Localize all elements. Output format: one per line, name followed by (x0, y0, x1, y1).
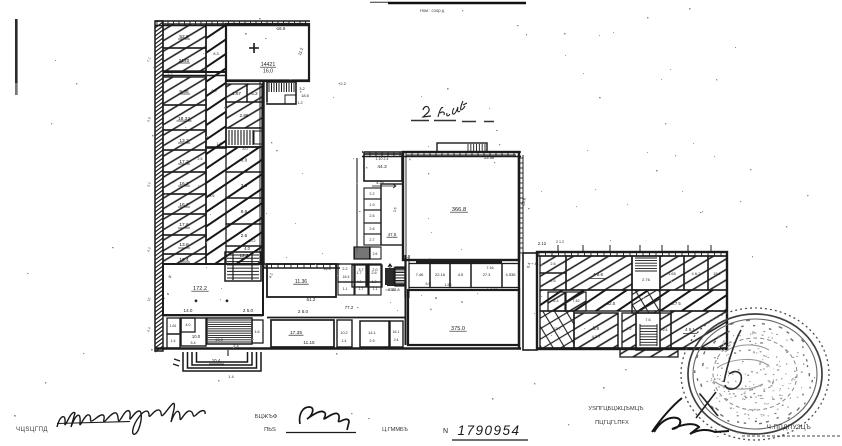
svg-text:1.4: 1.4 (342, 339, 347, 343)
svg-text:4.0: 4.0 (244, 246, 250, 251)
svg-text:32.5: 32.5 (607, 301, 616, 306)
svg-text:£ 73.8: £ 73.8 (388, 287, 400, 292)
svg-text:6.4: 6.4 (553, 299, 558, 303)
svg-text:13.0: 13.0 (215, 337, 224, 342)
svg-text:2.6: 2.6 (373, 252, 378, 256)
svg-text:◆: ◆ (194, 298, 198, 303)
svg-text:16.4: 16.4 (343, 275, 350, 279)
svg-text:1.2: 1.2 (372, 280, 377, 284)
svg-text:ЧЦSЦГПД: ЧЦSЦГПД (16, 427, 48, 433)
svg-text:4.6: 4.6 (255, 330, 260, 334)
svg-text:8.0: 8.0 (241, 158, 248, 163)
svg-text:7.6: 7.6 (645, 318, 650, 322)
svg-text:ˈ: ˈ (645, 240, 646, 244)
svg-text:s: s (461, 300, 463, 304)
svg-text:77.2: 77.2 (345, 305, 354, 310)
svg-text:2.6: 2.6 (550, 279, 555, 283)
svg-text:10.4: 10.4 (212, 358, 221, 363)
svg-text:1.56: 1.56 (445, 283, 452, 287)
svg-text:13.7: 13.7 (553, 326, 562, 331)
svg-text:14.1: 14.1 (368, 330, 377, 335)
svg-text:4.2: 4.2 (357, 280, 362, 284)
svg-text:2.6: 2.6 (369, 227, 374, 231)
svg-text:1790954: 1790954 (457, 423, 520, 438)
svg-text:2.6: 2.6 (550, 262, 555, 266)
svg-text:2.4: 2.4 (394, 338, 399, 342)
svg-text:37.2: 37.2 (642, 296, 650, 301)
svg-text:5.2: 5.2 (251, 91, 258, 96)
svg-text:5.8: 5.8 (593, 326, 599, 331)
svg-text:4 6.6: 4 6.6 (593, 272, 604, 277)
svg-text:◆: ◆ (225, 298, 229, 303)
svg-text:16,0: 16,0 (263, 69, 273, 75)
svg-text:Ч.ППДПУЗЦЪ: Ч.ППДПУЗЦЪ (767, 424, 811, 431)
svg-text:1.61: 1.61 (170, 324, 177, 328)
svg-text:7.42: 7.42 (572, 299, 579, 303)
svg-text:16.6: 16.6 (277, 26, 286, 31)
svg-text:2.76: 2.76 (642, 277, 651, 282)
svg-text:N: N (169, 274, 172, 279)
svg-text:1.9: 1.9 (369, 203, 374, 207)
svg-text:1.7: 1.7 (356, 271, 361, 275)
svg-text:2.2: 2.2 (369, 192, 374, 196)
svg-text:2 5.0: 2 5.0 (243, 308, 254, 313)
svg-text:1.2: 1.2 (297, 101, 302, 105)
svg-text:1.65: 1.65 (668, 271, 677, 276)
svg-text:1 4: 1 4 (228, 374, 234, 379)
svg-text:13.8: 13.8 (179, 242, 189, 248)
svg-text:+: + (409, 157, 412, 162)
svg-text:44.3: 44.3 (377, 164, 387, 170)
svg-text:7.2: 7.2 (626, 327, 631, 331)
svg-text:+: + (430, 307, 433, 312)
svg-text:5.2: 5.2 (168, 73, 173, 77)
svg-text:+ 4 -: + 4 - (531, 262, 539, 266)
svg-text:4.536: 4.536 (505, 272, 516, 277)
svg-text:2.7: 2.7 (369, 238, 374, 242)
svg-text:1.1: 1.1 (343, 287, 348, 291)
svg-text:3.6: 3.6 (393, 207, 398, 213)
svg-text:3.4: 3.4 (190, 341, 195, 345)
svg-text:3.2: 3.2 (299, 86, 305, 91)
svg-text:1.4: 1.4 (171, 339, 176, 343)
svg-text:3.6: 3.6 (241, 183, 248, 188)
svg-text:7.46: 7.46 (416, 272, 425, 277)
svg-text:4.5: 4.5 (458, 272, 464, 277)
svg-text:61.2: 61.2 (307, 297, 316, 302)
svg-text:УSПГЦБЦЖЦЪМЦЪ: УSПГЦБЦЖЦЪМЦЪ (588, 406, 644, 412)
svg-text:s: s (167, 291, 169, 296)
svg-text:10.2: 10.2 (340, 331, 347, 335)
svg-text:2 5.0: 2 5.0 (298, 309, 309, 314)
svg-text:a: a (435, 296, 437, 300)
svg-text:Ц.ГММБЪ: Ц.ГММБЪ (382, 427, 408, 433)
svg-text:+2.2: +2.2 (338, 81, 347, 86)
svg-text:17.6: 17.6 (179, 222, 189, 228)
svg-text:4 6.1: 4 6.1 (685, 327, 695, 332)
svg-text:2 1 2: 2 1 2 (556, 240, 564, 244)
svg-text:47.5: 47.5 (388, 232, 397, 237)
svg-text:22.16: 22.16 (435, 272, 446, 277)
svg-text:ПЬS: ПЬS (264, 427, 276, 433)
svg-text:5.6: 5.6 (426, 282, 431, 286)
svg-text:2.6: 2.6 (198, 157, 203, 161)
svg-text:14.0: 14.0 (184, 308, 193, 313)
svg-text:2.86: 2.86 (240, 113, 249, 118)
svg-text:2.6: 2.6 (663, 328, 668, 332)
svg-text:1.67: 1.67 (232, 91, 241, 96)
svg-text:4.0: 4.0 (186, 323, 191, 327)
svg-text:27.3: 27.3 (483, 272, 492, 277)
svg-text:5.7 5: 5.7 5 (671, 301, 681, 306)
svg-text:7.16: 7.16 (486, 266, 493, 270)
svg-text:N: N (443, 428, 448, 435)
svg-text:16.1: 16.1 (393, 330, 400, 334)
svg-text:2.6: 2.6 (369, 214, 374, 218)
svg-text:2.12: 2.12 (538, 241, 547, 246)
svg-text:2.6: 2.6 (241, 233, 248, 238)
svg-text:18.5: 18.5 (301, 93, 310, 98)
svg-text:9.6: 9.6 (241, 209, 248, 214)
svg-text:1.10 2.4: 1.10 2.4 (376, 157, 389, 161)
svg-text:15.2: 15.2 (713, 272, 720, 276)
svg-text:4 6.2: 4 6.2 (692, 271, 702, 276)
svg-text:2.9: 2.9 (369, 339, 374, 343)
svg-text:16.6: 16.6 (323, 267, 330, 271)
svg-text:11.15: 11.15 (303, 340, 315, 345)
svg-text:БЦЖЪФ: БЦЖЪФ (255, 414, 278, 420)
svg-text:ПЦГЦГLПFХ: ПЦГЦГLПFХ (595, 420, 629, 426)
svg-text:13.56: 13.56 (484, 155, 495, 160)
svg-text:10.0: 10.0 (192, 334, 201, 339)
svg-text:Ном : соор д: Ном : соор д (420, 8, 445, 13)
svg-text:2.2: 2.2 (342, 267, 347, 271)
svg-text:4.3 7: 4.3 7 (592, 334, 601, 339)
svg-text:2.6: 2.6 (371, 271, 376, 275)
